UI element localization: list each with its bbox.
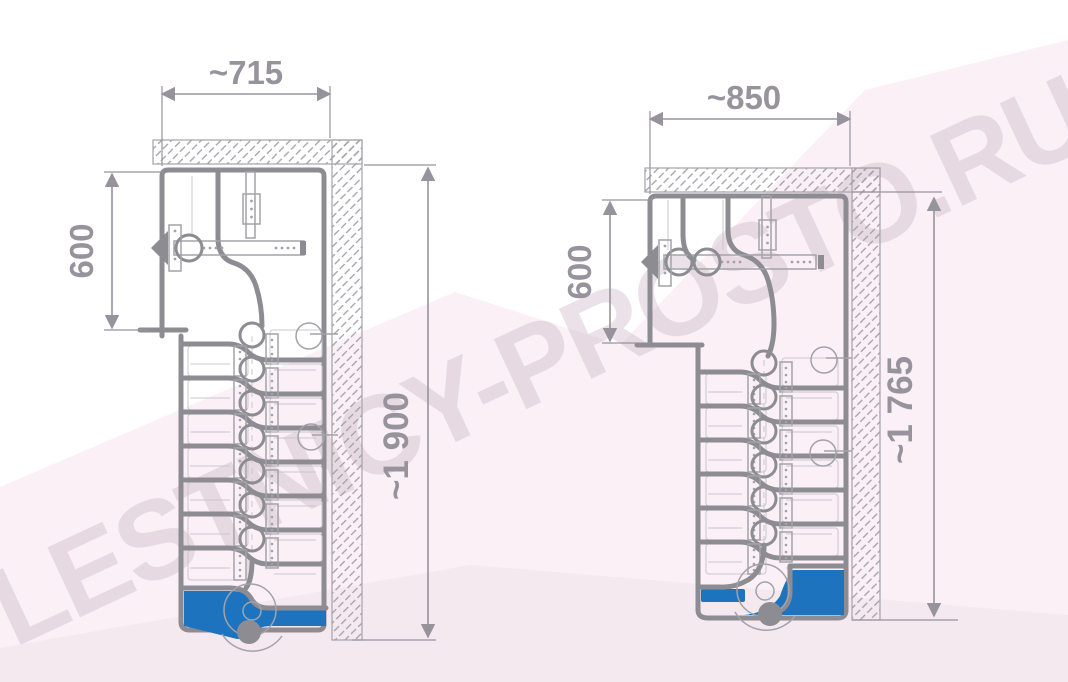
staircase-plans-figure: LESTNICY-PROSTO.RU <box>0 0 1068 682</box>
dimension-label-flight-width-right: 600 <box>561 244 598 299</box>
center-post <box>246 172 255 238</box>
wall-top-right-drawing <box>645 168 880 192</box>
dimension-label-width-right: ~850 <box>707 79 781 116</box>
newel-post-base <box>237 620 261 644</box>
baluster-circle <box>176 235 202 261</box>
technical-drawing-canvas: LESTNICY-PROSTO.RU <box>0 0 1068 682</box>
dimension-label-flight-width-left: 600 <box>63 223 100 278</box>
dimension-label-height-right: ~1 765 <box>881 356 920 464</box>
dimension-label-width-left: ~715 <box>209 54 283 91</box>
wall-right-left-drawing <box>332 140 362 640</box>
dimension-label-height-left: ~1 900 <box>377 392 416 500</box>
wall-top-left-drawing <box>153 140 362 164</box>
newel-post-base <box>758 602 782 626</box>
top-flight-left <box>151 172 306 326</box>
wall-right-right-drawing <box>852 168 880 620</box>
handrail-bolts <box>203 247 296 250</box>
handrail-beam <box>174 241 304 255</box>
